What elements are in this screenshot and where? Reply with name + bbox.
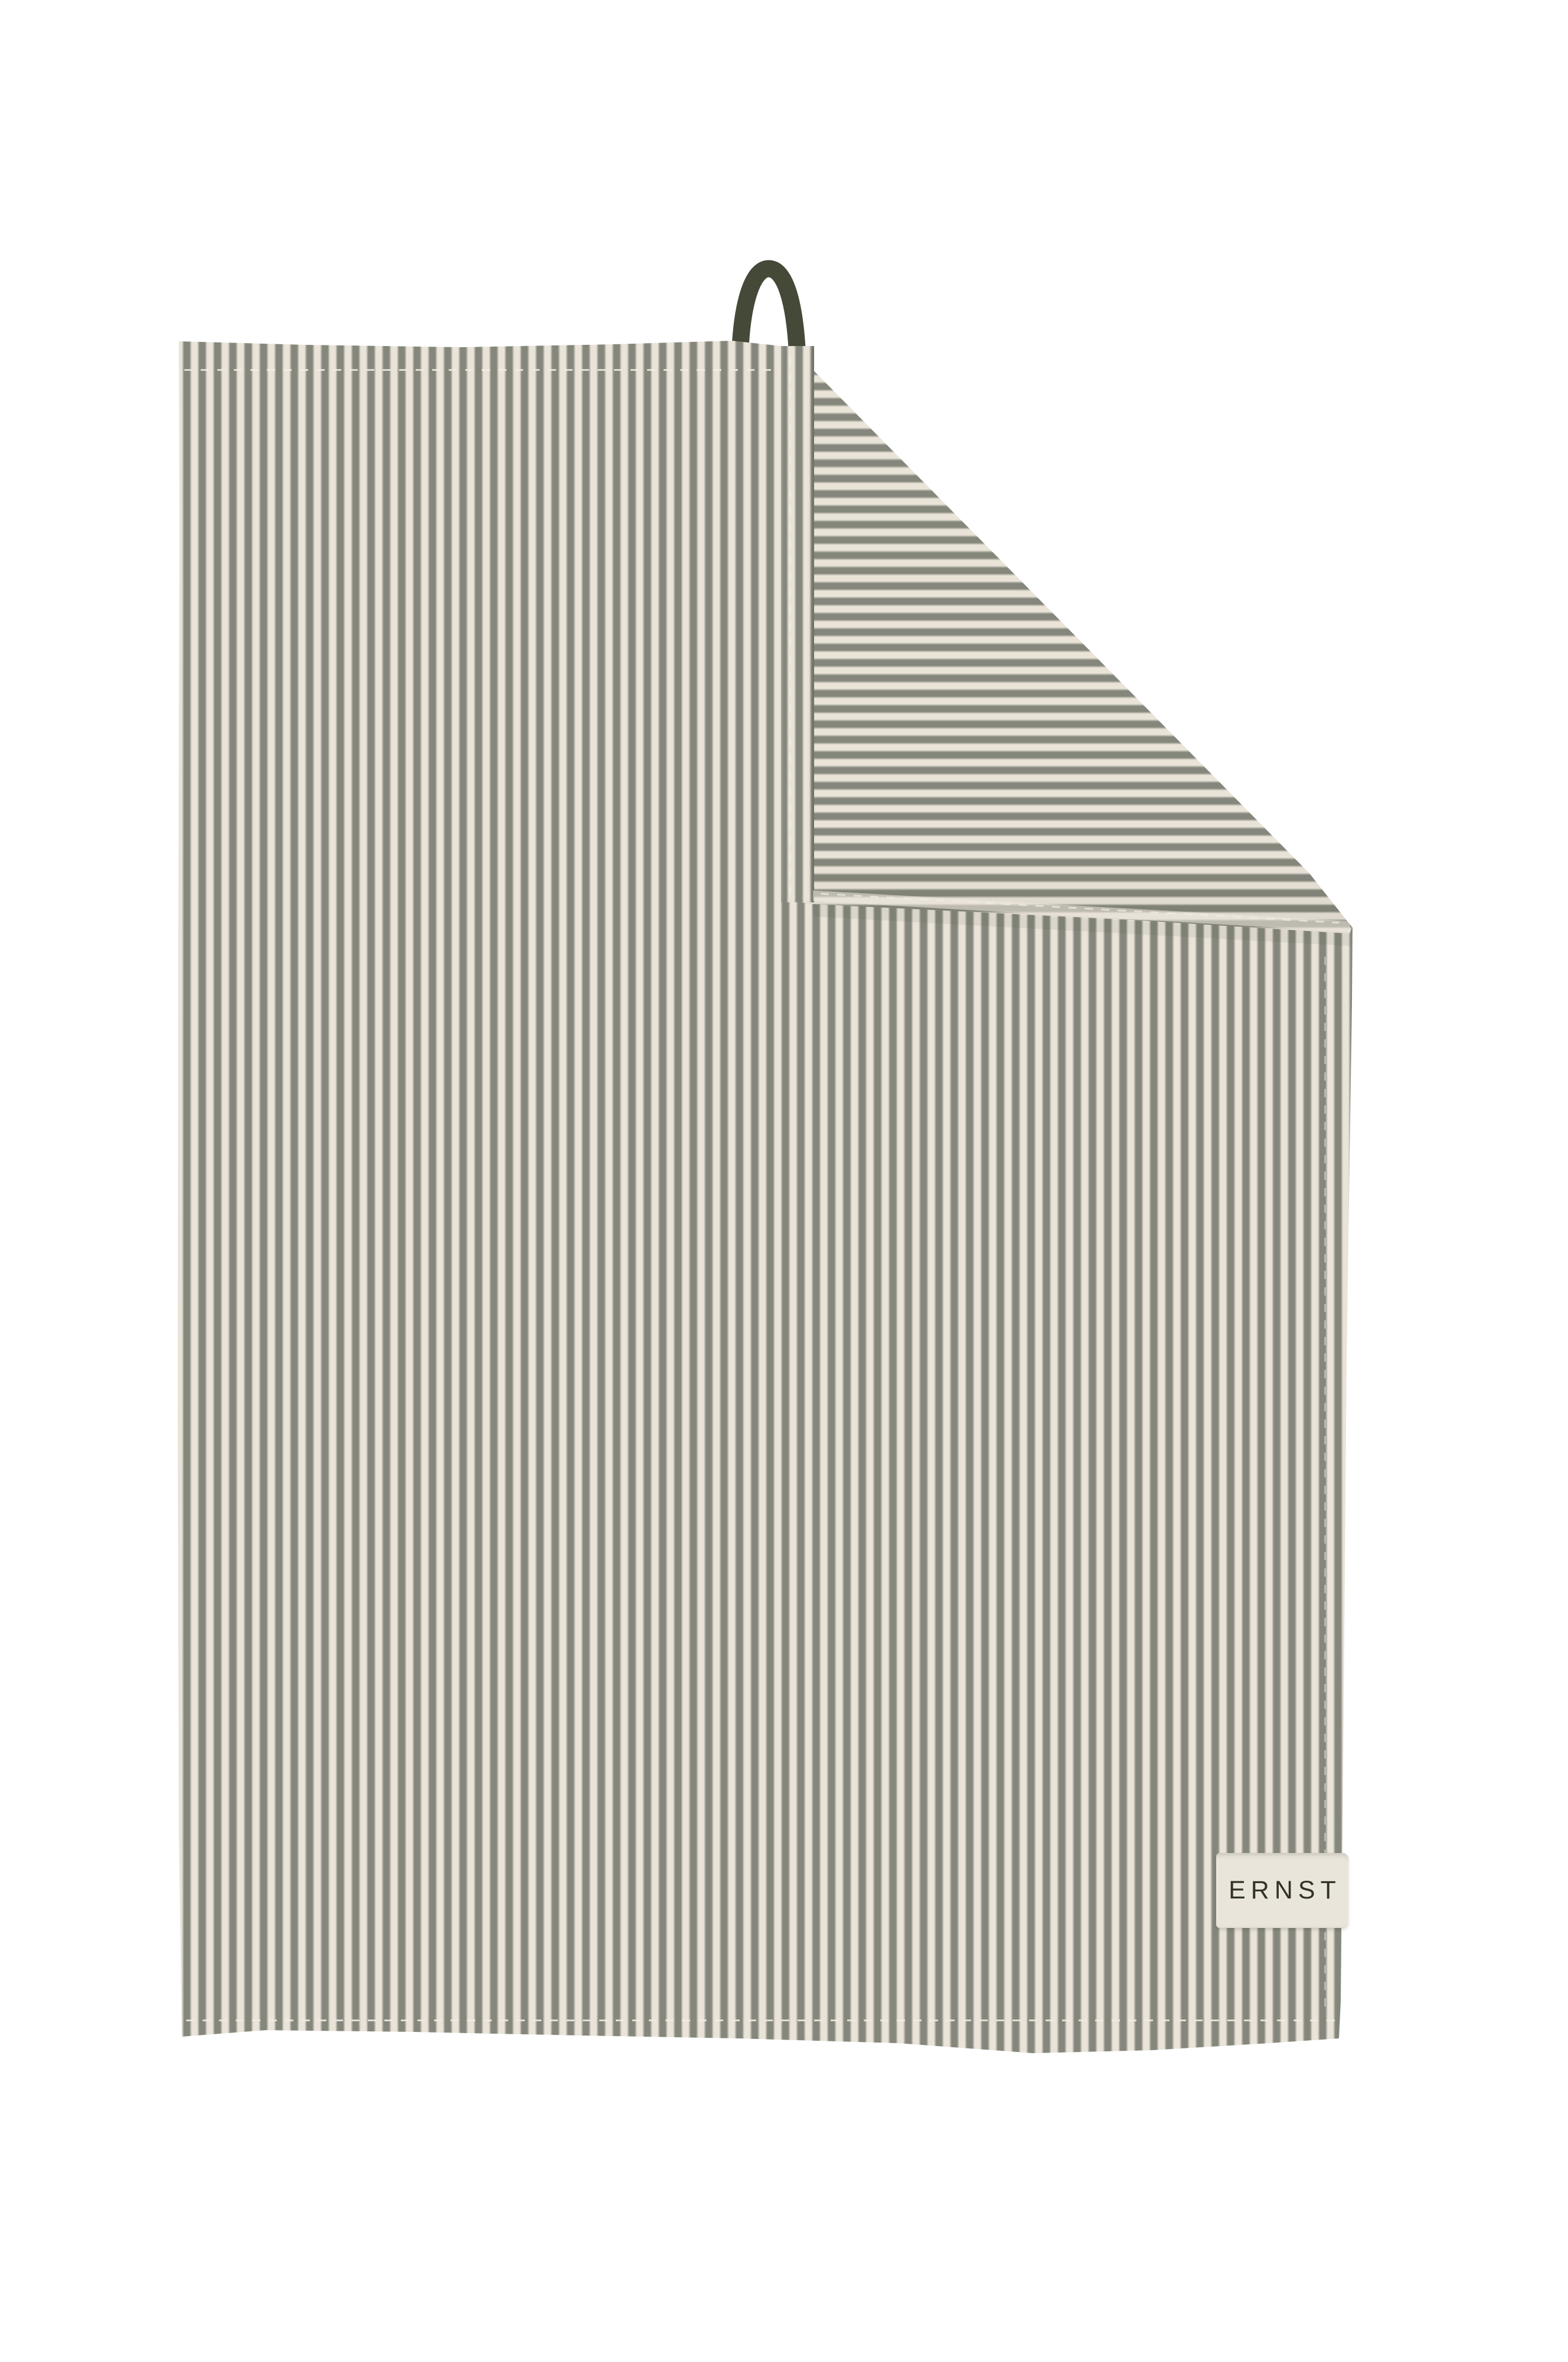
right-hem-stitch [1324, 957, 1326, 2008]
folded-corner-hem-band [781, 346, 814, 902]
folded-corner-hem-stitch [789, 357, 791, 898]
top-hem-stitch [184, 369, 780, 371]
product-photo: ERNST [0, 0, 1568, 2362]
bottom-hem-stitch [186, 2020, 1337, 2021]
brand-label: ERNST [1216, 1853, 1348, 1928]
brand-label-text: ERNST [1223, 1876, 1341, 1905]
